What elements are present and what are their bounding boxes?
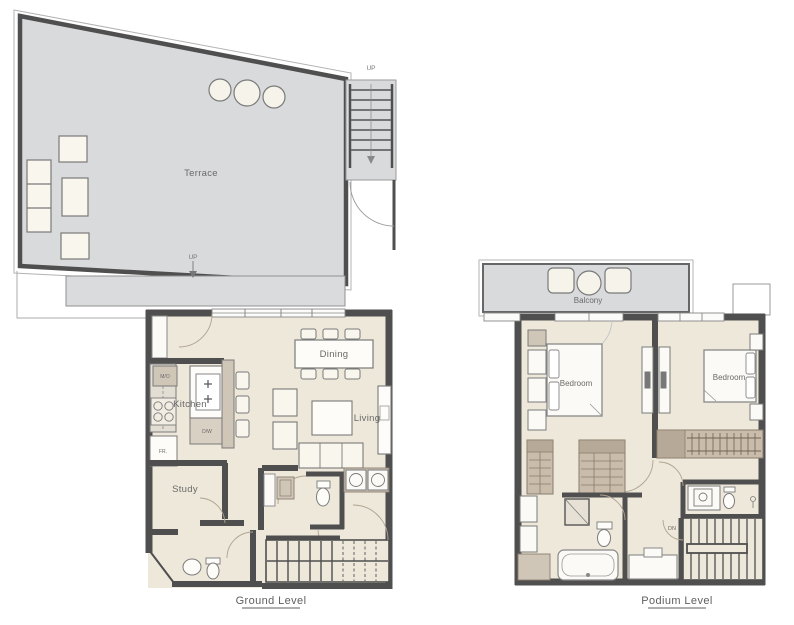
terrace-stairs-up-label: UP	[366, 65, 375, 72]
washer-dryer	[344, 468, 389, 492]
terrace-ledge	[66, 276, 345, 306]
podium-stairs-dn-label: DN	[668, 526, 676, 532]
ground-windows	[212, 309, 345, 317]
bathroom-toilet	[207, 563, 219, 579]
floor-plan-page: Terrace UP UP	[0, 0, 794, 625]
bedroom-left-label: Bedroom	[560, 379, 593, 388]
microwave-oven-label: M/O	[160, 374, 170, 380]
dining-label: Dining	[320, 349, 349, 360]
entry-closet	[152, 316, 167, 358]
terrace: Terrace UP	[14, 10, 351, 318]
wardrobe-right	[657, 430, 763, 458]
study-label: Study	[172, 484, 198, 495]
fridge-label: FR.	[159, 449, 167, 455]
balcony: Balcony	[479, 260, 693, 316]
bar-stools	[236, 372, 249, 437]
ground-level: Terrace UP UP	[14, 10, 396, 608]
bathroom-sink	[183, 559, 201, 575]
ground-level-caption: Ground Level	[236, 595, 307, 607]
bedroom-right-label: Bedroom	[713, 373, 746, 382]
dishwasher-label: D/W	[202, 429, 212, 435]
terrace-label: Terrace	[184, 168, 218, 179]
wc-toilet	[317, 488, 330, 506]
kitchen-label: Kitchen	[173, 399, 207, 410]
podium-level: Balcony	[479, 260, 770, 608]
podium-ledge	[733, 284, 770, 315]
living-label: Living	[354, 413, 381, 424]
podium-level-caption: Podium Level	[641, 595, 712, 607]
hall-cabinet	[264, 474, 275, 506]
balcony-label: Balcony	[574, 296, 602, 305]
balcony-furniture	[548, 268, 631, 295]
terrace-exit-up-label: UP	[188, 254, 197, 261]
ensuite-toilet	[598, 530, 611, 547]
terrace-stairs: UP	[346, 65, 396, 250]
podium-windows	[484, 313, 724, 321]
breakfast-bar	[222, 360, 234, 448]
floor-plan-drawing: Terrace UP UP	[0, 0, 794, 625]
ground-unit: M/O FR. D/W	[146, 309, 392, 608]
podium-unit: Bedroom	[484, 313, 765, 608]
toilet	[724, 494, 735, 509]
